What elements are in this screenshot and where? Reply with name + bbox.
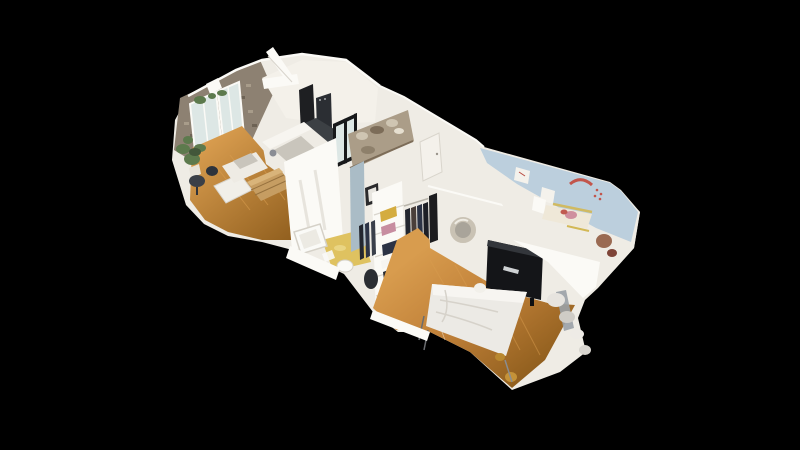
apartment-3d-model [0, 0, 800, 450]
scan-blob [474, 283, 486, 293]
toilet [337, 260, 353, 272]
appliance-knob [324, 98, 326, 100]
scan-blob [579, 345, 591, 355]
leaf-blob [183, 136, 193, 144]
side-chair [206, 166, 218, 176]
scan-blob [559, 311, 575, 323]
viewer-canvas[interactable] [0, 0, 800, 450]
confetti-dot [600, 193, 603, 196]
throw-cushion [270, 150, 277, 157]
confetti-dot [594, 195, 597, 198]
door-knob [436, 153, 438, 155]
kids-furniture-dark [607, 249, 617, 257]
pillow-blob [394, 128, 404, 134]
greenery-blob [217, 90, 227, 96]
greenery-blob [194, 96, 206, 104]
wooden-bed-leg [495, 353, 505, 361]
greenery-blob [208, 93, 216, 99]
blanket-blob [370, 126, 384, 134]
confetti-dot [599, 198, 602, 201]
partition-bar [344, 118, 347, 164]
floor-highlight [334, 245, 346, 251]
blanket-blob [356, 132, 368, 140]
rattan-mirror [453, 220, 474, 241]
clothes-mannequin [364, 269, 378, 289]
stone-speckle [248, 110, 253, 113]
hanging-clothes-left [359, 220, 376, 260]
scan-blob [570, 329, 584, 339]
leaf-blob-dark [189, 148, 201, 156]
kids-toy-red [561, 210, 568, 215]
stone-speckle [246, 84, 251, 87]
appliance-knob [319, 99, 321, 101]
tv-stand-leg [530, 298, 534, 306]
open-doorway [429, 193, 438, 243]
kids-furniture-brown [596, 234, 612, 248]
blanket-blob [386, 119, 398, 127]
office-chair [189, 175, 205, 187]
blanket-blob [361, 146, 375, 154]
confetti-dot [596, 189, 599, 192]
stone-speckle [252, 124, 257, 127]
hallway-door [420, 133, 442, 181]
scan-blob [547, 293, 565, 307]
stone-speckle [184, 122, 189, 125]
leaf-blob [176, 144, 190, 154]
